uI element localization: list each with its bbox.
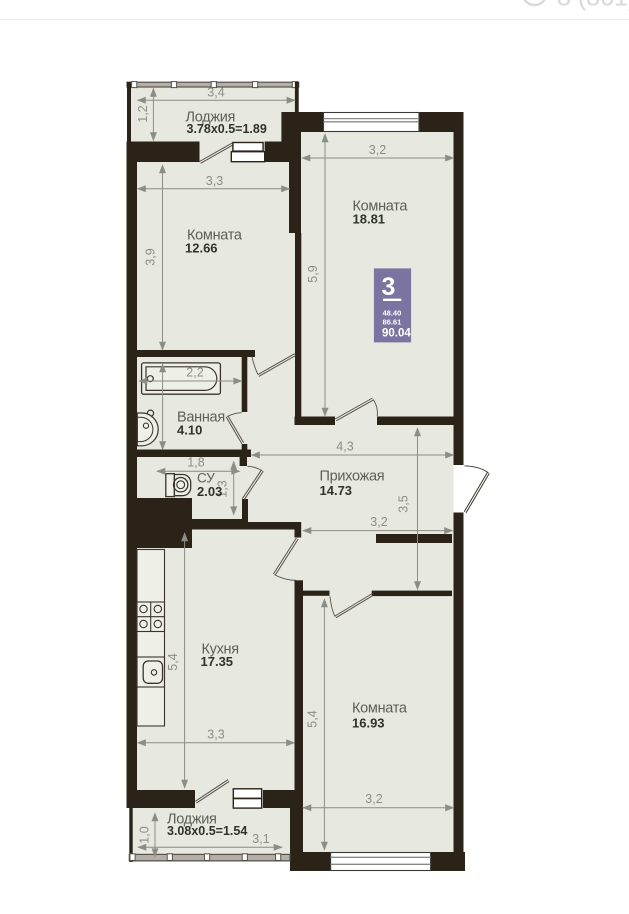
svg-text:3,3: 3,3 <box>206 174 223 188</box>
svg-text:1,2: 1,2 <box>136 105 150 122</box>
svg-text:1,0: 1,0 <box>138 826 152 843</box>
svg-text:86.61: 86.61 <box>383 318 402 327</box>
svg-text:3.78х0.5=1.89: 3.78х0.5=1.89 <box>187 122 267 136</box>
svg-text:Комната: Комната <box>352 701 408 717</box>
svg-text:5,4: 5,4 <box>166 653 180 670</box>
svg-text:3,1: 3,1 <box>252 832 269 846</box>
svg-text:5,9: 5,9 <box>306 265 320 282</box>
svg-text:3,9: 3,9 <box>144 248 158 265</box>
svg-text:2,2: 2,2 <box>186 366 203 380</box>
svg-text:3: 3 <box>382 273 396 301</box>
svg-text:1,8: 1,8 <box>187 456 204 470</box>
svg-text:4.10: 4.10 <box>177 423 202 438</box>
svg-text:3.08х0.5=1.54: 3.08х0.5=1.54 <box>167 824 247 838</box>
svg-text:3,2: 3,2 <box>369 143 386 157</box>
svg-text:16.93: 16.93 <box>352 716 385 731</box>
svg-text:3,2: 3,2 <box>365 792 382 806</box>
svg-text:14.73: 14.73 <box>320 483 353 498</box>
svg-text:3,4: 3,4 <box>207 86 224 100</box>
svg-text:90.04: 90.04 <box>382 328 411 340</box>
svg-text:18.81: 18.81 <box>353 212 386 227</box>
svg-text:48.40: 48.40 <box>383 309 402 318</box>
svg-text:3,2: 3,2 <box>370 515 387 529</box>
svg-text:3,3: 3,3 <box>207 728 224 742</box>
svg-text:12.66: 12.66 <box>185 241 218 256</box>
svg-text:5,4: 5,4 <box>306 710 320 727</box>
svg-text:8 (861): 8 (861) <box>557 0 629 12</box>
svg-text:4,3: 4,3 <box>336 440 353 454</box>
svg-text:2.03: 2.03 <box>197 484 222 499</box>
svg-text:17.35: 17.35 <box>201 654 234 669</box>
svg-text:3,5: 3,5 <box>397 495 411 512</box>
